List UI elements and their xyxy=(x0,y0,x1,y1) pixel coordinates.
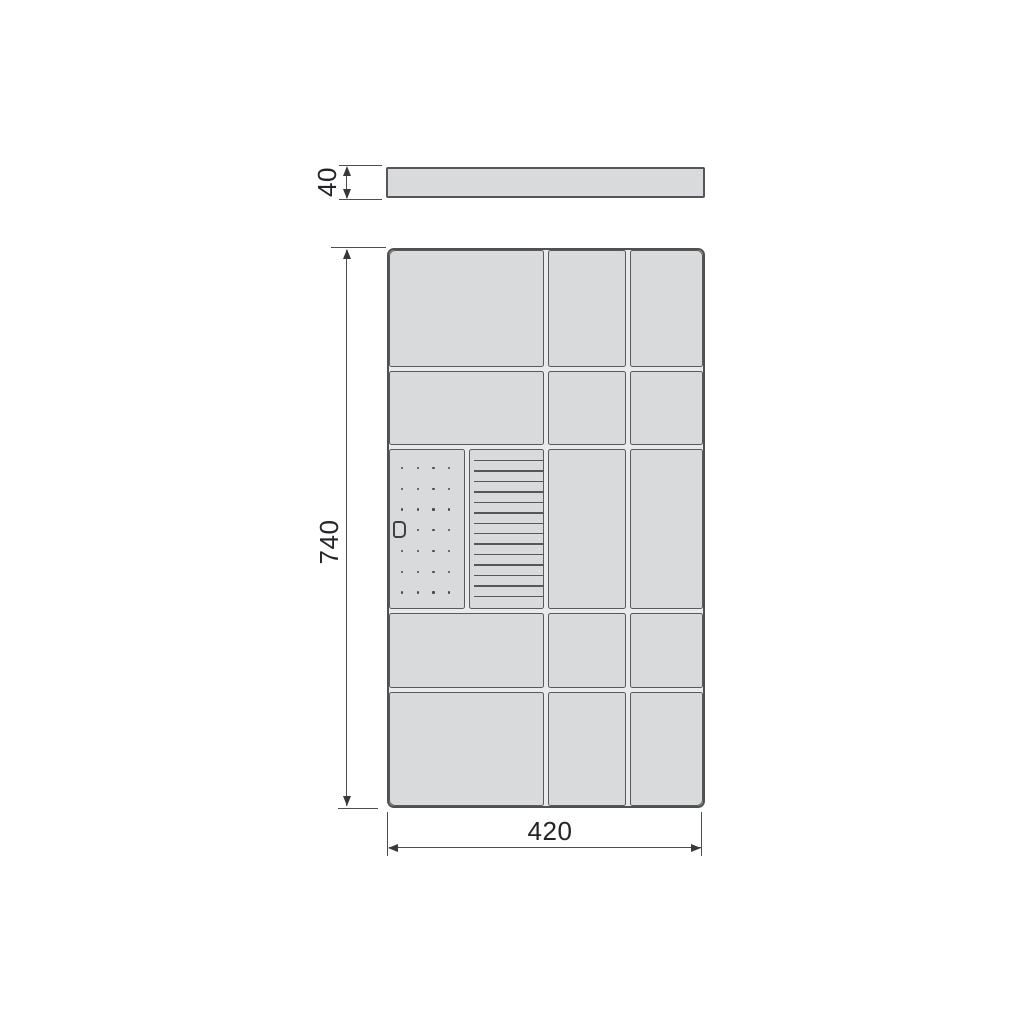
cabinet-front-panel xyxy=(387,248,705,808)
locker-door-r2c1 xyxy=(389,371,544,445)
pegboard-dot xyxy=(448,571,450,573)
dim-740-line xyxy=(346,250,347,806)
slat-line xyxy=(474,543,543,545)
slat-line xyxy=(474,523,543,525)
locker-door-r4c2 xyxy=(548,613,626,688)
pegboard-dot xyxy=(432,550,434,552)
dim-40-label: 40 xyxy=(314,152,340,212)
slat-line xyxy=(474,460,543,462)
slat-line xyxy=(474,470,543,472)
pegboard-dot xyxy=(401,488,403,490)
dim-420-line xyxy=(389,847,701,848)
pegboard-dot xyxy=(417,591,419,593)
locker-door-r4c1 xyxy=(389,613,544,688)
locker-door-r5c2 xyxy=(548,692,626,806)
slat-line xyxy=(474,596,543,598)
pegboard-dot xyxy=(448,488,450,490)
slat-line xyxy=(474,585,543,587)
locker-door-r1c2 xyxy=(548,250,626,367)
locker-door-r4c3 xyxy=(630,613,703,688)
slat-line xyxy=(474,491,543,493)
locker-door-r2c2 xyxy=(548,371,626,445)
dim-740-extension-bottom xyxy=(338,808,378,809)
technical-drawing-canvas: 40 740 420 xyxy=(0,0,1024,1024)
pegboard-dot xyxy=(401,550,403,552)
pegboard-dot xyxy=(448,550,450,552)
dim-740-arrow-up-icon xyxy=(343,249,351,259)
pegboard-dot xyxy=(417,488,419,490)
pegboard-dot xyxy=(417,508,419,510)
pegboard-dot xyxy=(417,571,419,573)
pegboard-dot xyxy=(417,550,419,552)
pegboard-dot xyxy=(448,591,450,593)
slat-line xyxy=(474,502,543,504)
dim-740-extension-top xyxy=(331,247,386,248)
slat-line xyxy=(474,512,543,514)
locker-door-r1c1 xyxy=(389,250,544,367)
locker-door-r3c3 xyxy=(630,449,703,609)
dim-420-label: 420 xyxy=(510,818,590,844)
dim-740-label: 740 xyxy=(316,502,342,582)
pegboard-door xyxy=(389,449,465,609)
pegboard-dot xyxy=(417,467,419,469)
dim-420-arrow-left-icon xyxy=(388,844,398,852)
pegboard-dot xyxy=(417,529,419,531)
vent-slat-door xyxy=(469,449,544,609)
locker-door-r5c1 xyxy=(389,692,544,806)
pegboard-dot xyxy=(448,529,450,531)
slat-line xyxy=(474,554,543,556)
pegboard-dot xyxy=(401,508,403,510)
door-handle xyxy=(393,521,406,538)
pegboard-dot xyxy=(432,508,434,510)
dim-740-arrow-down-icon xyxy=(343,796,351,806)
top-panel-strip xyxy=(386,167,705,198)
slat-line xyxy=(474,564,543,566)
locker-door-r2c3 xyxy=(630,371,703,445)
slat-line xyxy=(474,533,543,535)
dim-420-extension-right xyxy=(701,812,702,856)
pegboard-dot xyxy=(432,529,434,531)
pegboard-dot xyxy=(448,508,450,510)
pegboard-dot xyxy=(432,591,434,593)
slat-line xyxy=(474,575,543,577)
pegboard-dot xyxy=(432,488,434,490)
dim-420-arrow-right-icon xyxy=(691,844,701,852)
locker-door-r3c2 xyxy=(548,449,626,609)
dim-40-arrow-down-icon xyxy=(343,189,351,199)
pegboard-dot xyxy=(401,571,403,573)
pegboard-dot xyxy=(401,467,403,469)
pegboard-dot xyxy=(401,591,403,593)
slat-line xyxy=(474,481,543,483)
pegboard-dot xyxy=(432,571,434,573)
locker-door-r5c3 xyxy=(630,692,703,806)
pegboard-dot xyxy=(432,467,434,469)
locker-door-r1c3 xyxy=(630,250,703,367)
dim-40-arrow-up-icon xyxy=(343,166,351,176)
pegboard-dot xyxy=(448,467,450,469)
